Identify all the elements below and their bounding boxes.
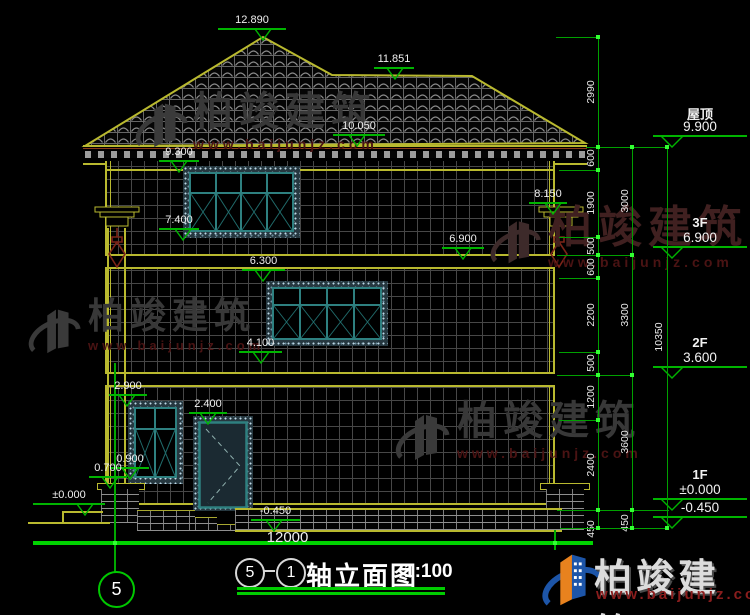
node-dot bbox=[596, 350, 600, 354]
elevation-triangle-icon bbox=[660, 135, 684, 153]
node-dot bbox=[596, 253, 600, 257]
extension-line bbox=[556, 37, 600, 38]
dimension-text: 2200 bbox=[585, 303, 597, 326]
elevation-value: 11.851 bbox=[366, 53, 422, 65]
dimension-text: 600 bbox=[585, 149, 597, 167]
dimension-text: 2400 bbox=[585, 453, 597, 476]
elevation-triangle-icon bbox=[252, 351, 270, 369]
extension-line bbox=[559, 170, 600, 171]
node-dot bbox=[665, 526, 669, 530]
elevation-value: 10.050 bbox=[325, 120, 393, 132]
node-dot bbox=[630, 526, 634, 530]
elevation-value: -0.450 bbox=[243, 505, 308, 517]
node-dot bbox=[596, 373, 600, 377]
dimension-text: 600 bbox=[585, 258, 597, 276]
node-dot bbox=[596, 276, 600, 280]
elevation-triangle-icon bbox=[660, 366, 684, 384]
elevation-line bbox=[218, 28, 286, 30]
dimension-text: 3600 bbox=[619, 430, 631, 453]
elevation-triangle-icon bbox=[386, 67, 404, 85]
node-dot bbox=[596, 508, 600, 512]
dimension-chain-line bbox=[632, 147, 633, 528]
elevation-triangle-icon bbox=[348, 134, 366, 152]
dimension-chain-line bbox=[667, 147, 668, 528]
elevation-value: 4.100 bbox=[231, 337, 290, 349]
elevation-value: 7.400 bbox=[151, 214, 207, 226]
elevation-triangle-icon bbox=[174, 228, 192, 246]
dimension-text: 3300 bbox=[619, 303, 631, 326]
extension-line bbox=[560, 528, 669, 529]
dimension-text: 3000 bbox=[619, 189, 631, 212]
elevation-triangle-icon bbox=[199, 412, 217, 430]
node-dot bbox=[553, 541, 557, 545]
elevation-value: 8.150 bbox=[521, 188, 575, 200]
floor-level-value: 9.900 bbox=[653, 119, 747, 134]
elevation-value: 2.400 bbox=[181, 398, 235, 410]
elevation-triangle-icon bbox=[544, 202, 562, 220]
elevation-value: 9.300 bbox=[151, 146, 207, 158]
node-dot bbox=[630, 373, 634, 377]
elevation-value: 12.890 bbox=[210, 14, 294, 26]
extension-line bbox=[559, 352, 600, 353]
elevation-value: 6.900 bbox=[434, 233, 492, 245]
elevation-value: 2.900 bbox=[101, 380, 155, 392]
node-dot bbox=[630, 508, 634, 512]
node-dot bbox=[596, 35, 600, 39]
elevation-triangle-icon bbox=[76, 503, 94, 521]
elevation-triangle-icon bbox=[265, 519, 283, 537]
node-dot bbox=[630, 253, 634, 257]
elevation-drawing-canvas: 12000 5 5 1 轴立面图 1:100 柏竣建筑 www.baijunjz… bbox=[0, 0, 750, 615]
elevation-triangle-icon bbox=[254, 28, 272, 46]
annotations-layer: 12.89011.85110.0509.3007.4006.3004.1006.… bbox=[0, 0, 750, 615]
elevation-triangle-icon bbox=[170, 160, 188, 178]
elevation-triangle-icon bbox=[454, 247, 472, 265]
dimension-text: 1200 bbox=[585, 385, 597, 408]
dimension-chain-line bbox=[598, 37, 599, 528]
elevation-value: 0.700 bbox=[81, 462, 135, 474]
elevation-triangle-icon bbox=[660, 516, 684, 534]
node-dot bbox=[596, 418, 600, 422]
extension-line bbox=[557, 510, 669, 511]
node-dot bbox=[596, 235, 600, 239]
node-dot bbox=[665, 145, 669, 149]
dimension-text: 10350 bbox=[653, 322, 665, 351]
elevation-triangle-icon bbox=[118, 394, 136, 412]
elevation-triangle-icon bbox=[254, 269, 272, 287]
elevation-triangle-icon bbox=[660, 246, 684, 264]
extension-line bbox=[559, 237, 600, 238]
elevation-value: 6.300 bbox=[234, 255, 293, 267]
extension-line bbox=[559, 420, 600, 421]
dimension-text: 500 bbox=[585, 354, 597, 372]
elevation-value: ±0.000 bbox=[25, 489, 113, 501]
dimension-text: 2990 bbox=[585, 80, 597, 103]
dimension-text: 1900 bbox=[585, 191, 597, 214]
node-dot bbox=[630, 145, 634, 149]
node-dot bbox=[596, 526, 600, 530]
node-dot bbox=[596, 145, 600, 149]
extension-line bbox=[559, 278, 600, 279]
node-dot bbox=[113, 541, 117, 545]
node-dot bbox=[596, 168, 600, 172]
elevation-line bbox=[33, 503, 105, 505]
